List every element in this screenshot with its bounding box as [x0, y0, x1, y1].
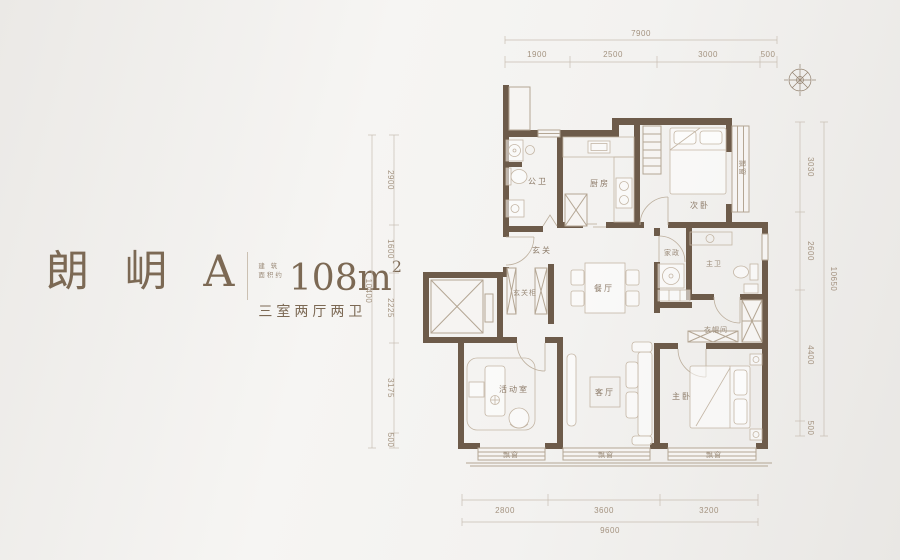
room-label-bath: 公卫: [528, 177, 548, 186]
svg-text:3000: 3000: [698, 50, 718, 59]
svg-text:2900: 2900: [386, 170, 395, 190]
room-label-bay-right: 飘窗: [738, 160, 747, 176]
room-label-living: 客厅: [595, 387, 615, 397]
room-label-master: 主卧: [672, 391, 692, 401]
room-label-bay-2: 飘窗: [598, 450, 614, 459]
svg-text:3175: 3175: [386, 378, 395, 398]
dim-top-total: 7900: [631, 29, 651, 38]
dim-right: 3030 2600 4400 500 10650: [795, 122, 838, 436]
dim-right-total: 10650: [829, 267, 838, 292]
cloakroom-closets: [688, 300, 762, 342]
dim-left-total: 10400: [364, 279, 373, 304]
room-label-kitchen: 厨房: [590, 178, 610, 188]
svg-text:3200: 3200: [699, 506, 719, 515]
activity-furniture: [467, 358, 535, 430]
dim-left: 10400 2900 1600 2225 3175 500: [364, 135, 399, 448]
svg-text:500: 500: [386, 433, 395, 448]
dim-bottom: 2800 3600 3200 9600: [462, 494, 758, 535]
room-label-bay-3: 飘窗: [706, 450, 722, 459]
room-label-entry: 玄关: [532, 245, 552, 255]
room-label-laundry: 家政: [664, 248, 680, 257]
svg-text:3030: 3030: [806, 157, 815, 177]
floor-plan-svg: 7900 1900 2500 3000 500 10400 2900 1600 …: [0, 0, 900, 560]
compass-icon: [784, 64, 816, 96]
svg-text:2800: 2800: [495, 506, 515, 515]
room-label-dining: 餐厅: [594, 284, 614, 293]
floorplan-page: 朗 岄 A 建 筑 面积约 108m2 三室两厅两卫: [0, 0, 900, 560]
svg-text:1900: 1900: [527, 50, 547, 59]
svg-text:2600: 2600: [806, 241, 815, 261]
master-bath-fixtures: [690, 232, 758, 293]
svg-text:500: 500: [806, 421, 815, 436]
svg-text:500: 500: [761, 50, 776, 59]
dim-bottom-total: 9600: [600, 526, 620, 535]
room-label-entry-cabinet: 玄关柜: [513, 288, 537, 297]
bedroom2-furniture: [643, 126, 726, 194]
room-label-cloakroom: 衣帽间: [704, 325, 728, 334]
svg-text:4400: 4400: [806, 345, 815, 365]
svg-text:3600: 3600: [594, 506, 614, 515]
svg-text:2500: 2500: [603, 50, 623, 59]
elevator: [431, 280, 493, 333]
room-label-bay-1: 飘窗: [503, 450, 519, 459]
svg-text:1600: 1600: [386, 239, 395, 259]
master-bedroom-furniture: [690, 354, 762, 440]
room-label-master-bath: 主卫: [706, 259, 722, 268]
laundry-fixtures: [658, 264, 690, 301]
dim-top: 7900 1900 2500 3000 500: [505, 29, 777, 68]
svg-text:2225: 2225: [386, 298, 395, 318]
room-label-activity: 活动室: [499, 384, 529, 394]
room-label-bedroom2: 次卧: [690, 200, 710, 210]
